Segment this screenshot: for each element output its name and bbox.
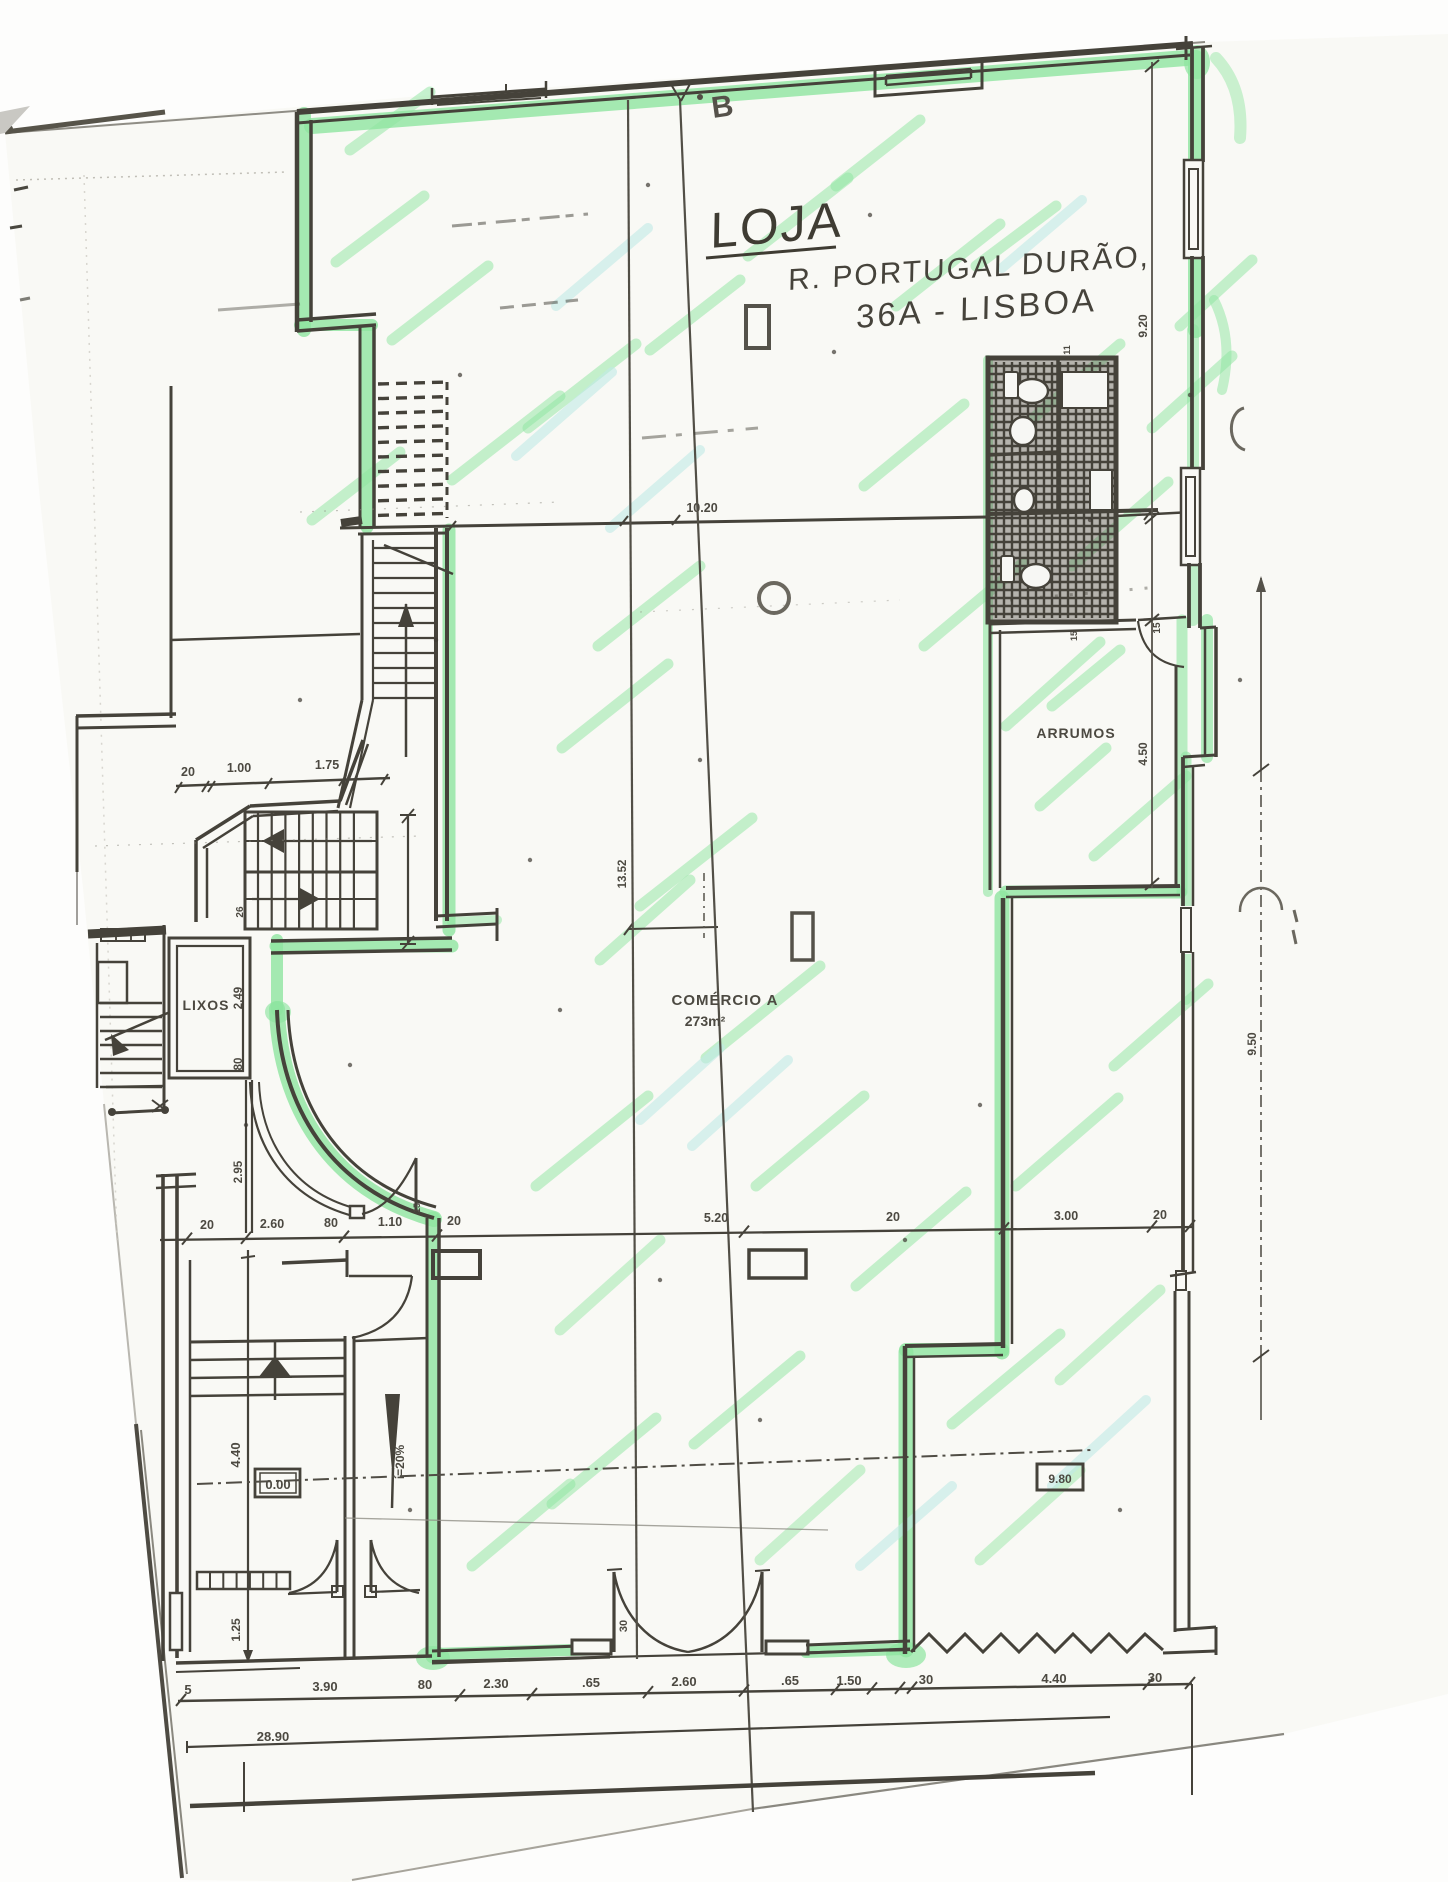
- svg-text:i=20%: i=20%: [393, 1444, 407, 1479]
- svg-text:20: 20: [181, 765, 195, 779]
- svg-text:3.00: 3.00: [1054, 1209, 1078, 1223]
- svg-text:9.20: 9.20: [1136, 314, 1150, 338]
- svg-text:30: 30: [618, 1620, 630, 1632]
- svg-text:B: B: [709, 89, 735, 125]
- svg-text:9.80: 9.80: [1048, 1472, 1072, 1486]
- svg-text:20: 20: [200, 1218, 214, 1232]
- svg-text:COMÉRCIO A: COMÉRCIO A: [672, 992, 779, 1009]
- svg-text:15: 15: [412, 1203, 422, 1213]
- svg-text:11: 11: [1062, 345, 1072, 355]
- svg-text:20: 20: [447, 1214, 461, 1228]
- svg-text:26: 26: [235, 906, 246, 918]
- svg-text:2.60: 2.60: [260, 1217, 284, 1231]
- svg-text:5: 5: [184, 1682, 191, 1697]
- svg-text:1.25: 1.25: [229, 1618, 243, 1642]
- svg-text:2.49: 2.49: [233, 987, 245, 1009]
- svg-text:30: 30: [1148, 1670, 1162, 1685]
- svg-text:1.10: 1.10: [378, 1215, 402, 1229]
- svg-text:ARRUMOS: ARRUMOS: [1036, 725, 1115, 741]
- svg-text:80: 80: [233, 1058, 245, 1071]
- svg-text:4.40: 4.40: [1041, 1671, 1066, 1686]
- svg-text:1.50: 1.50: [836, 1673, 861, 1688]
- svg-text:5.20: 5.20: [704, 1211, 728, 1225]
- svg-text:4.40: 4.40: [228, 1442, 243, 1467]
- svg-text:20: 20: [1153, 1208, 1167, 1222]
- svg-text:15: 15: [1152, 622, 1163, 634]
- svg-text:2.95: 2.95: [233, 1160, 245, 1183]
- svg-text:.65: .65: [781, 1673, 799, 1688]
- svg-text:1.75: 1.75: [315, 758, 339, 772]
- svg-text:1.00: 1.00: [227, 761, 251, 775]
- svg-text:2.30: 2.30: [483, 1676, 508, 1691]
- svg-text:3.90: 3.90: [312, 1679, 337, 1694]
- svg-text:80: 80: [324, 1216, 338, 1230]
- svg-text:4.50: 4.50: [1136, 742, 1150, 766]
- svg-text:15: 15: [1069, 631, 1079, 641]
- svg-text:28.90: 28.90: [257, 1729, 290, 1744]
- svg-text:9.50: 9.50: [1245, 1032, 1259, 1056]
- svg-text:2.60: 2.60: [671, 1674, 696, 1689]
- svg-text:.65: .65: [582, 1675, 600, 1690]
- svg-text:10.20: 10.20: [686, 501, 717, 515]
- svg-text:LIXOS: LIXOS: [182, 997, 229, 1013]
- svg-text:0.00: 0.00: [265, 1477, 290, 1492]
- svg-text:80: 80: [418, 1677, 432, 1692]
- svg-text:273m²: 273m²: [685, 1013, 726, 1029]
- svg-text:13.52: 13.52: [617, 860, 629, 889]
- svg-text:20: 20: [886, 1210, 900, 1224]
- svg-text:30: 30: [919, 1672, 933, 1687]
